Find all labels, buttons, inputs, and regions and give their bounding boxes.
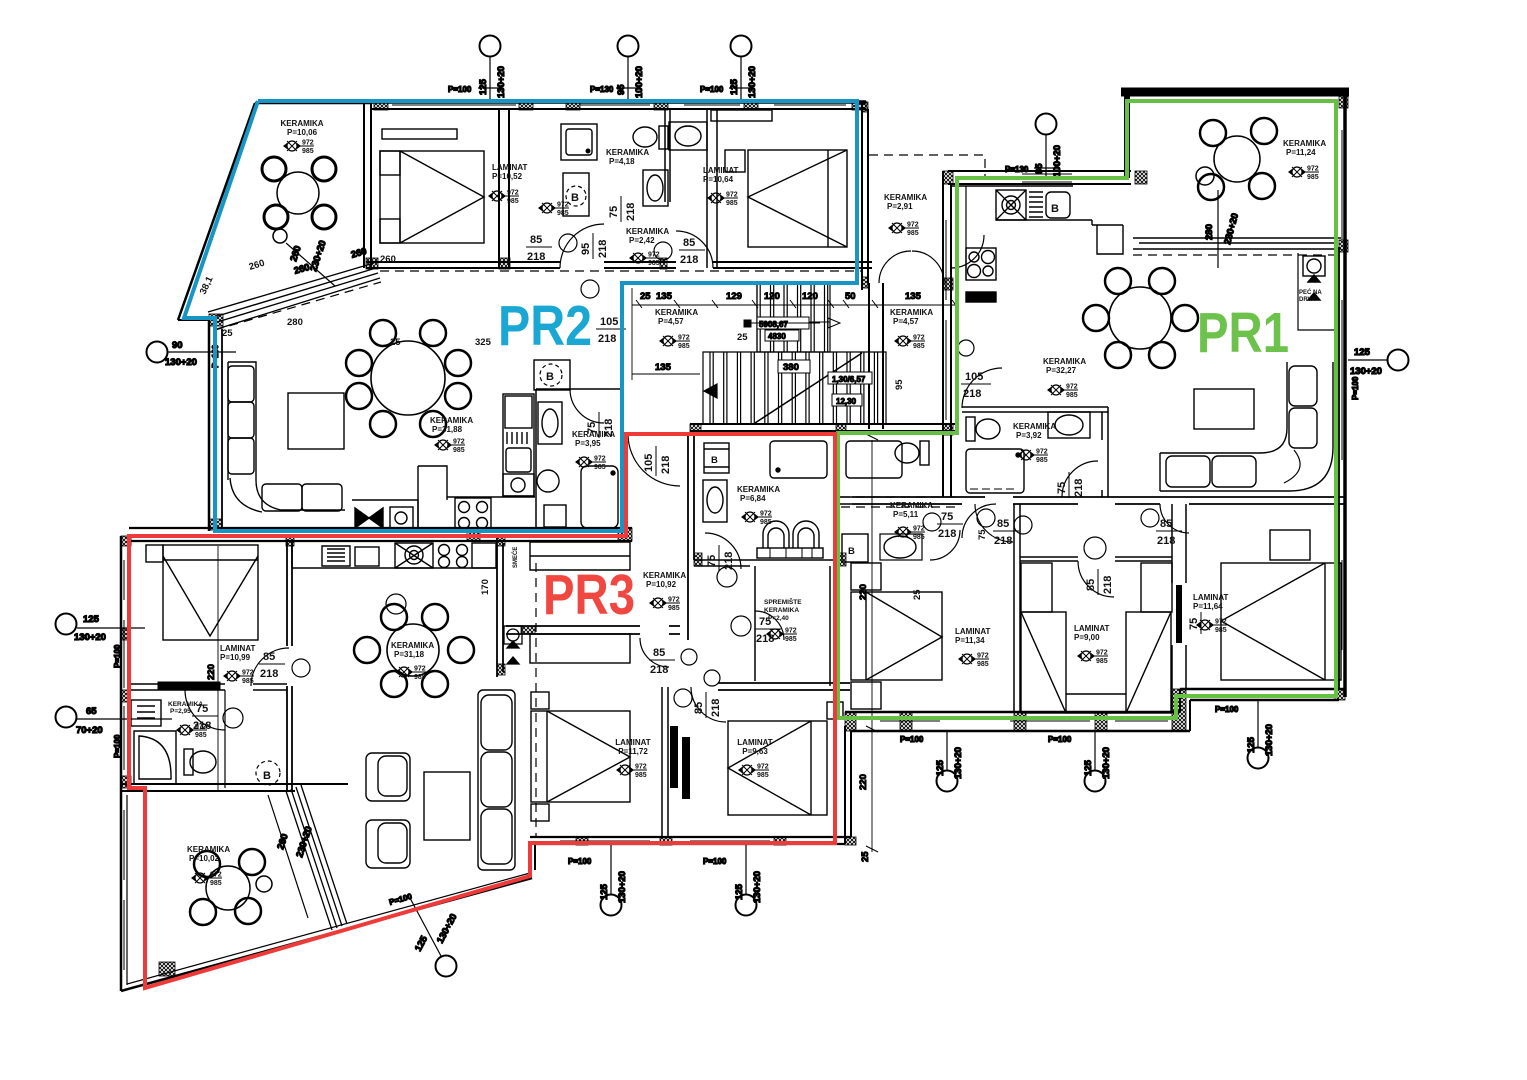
svg-text:B: B: [848, 546, 855, 557]
svg-text:129: 129: [726, 291, 742, 302]
svg-text:DRVA: DRVA: [1299, 297, 1316, 303]
svg-text:218: 218: [1157, 535, 1175, 547]
svg-text:218: 218: [710, 699, 722, 717]
svg-text:25: 25: [640, 291, 651, 302]
svg-text:135: 135: [655, 362, 672, 373]
svg-text:125: 125: [734, 883, 745, 900]
svg-text:P=31,18: P=31,18: [394, 650, 425, 659]
svg-text:218: 218: [723, 552, 735, 570]
svg-text:P=11,64: P=11,64: [1193, 602, 1223, 611]
svg-text:130+20: 130+20: [1101, 747, 1112, 779]
svg-text:75: 75: [608, 206, 620, 218]
svg-text:130+20: 130+20: [1264, 724, 1275, 756]
svg-text:P=31,88: P=31,88: [432, 425, 463, 434]
svg-text:25: 25: [390, 337, 401, 348]
svg-text:25: 25: [912, 589, 923, 600]
svg-text:P=4,57: P=4,57: [893, 317, 919, 326]
svg-text:85: 85: [263, 651, 275, 663]
svg-text:P=6,84: P=6,84: [740, 494, 766, 503]
svg-text:280: 280: [287, 317, 303, 328]
svg-text:218: 218: [598, 333, 616, 345]
svg-text:P=5,11: P=5,11: [893, 510, 919, 519]
svg-text:LAMINAT: LAMINAT: [220, 644, 256, 653]
svg-text:260: 260: [380, 254, 396, 265]
svg-text:LAMINAT: LAMINAT: [1193, 593, 1229, 602]
svg-text:85: 85: [653, 647, 665, 659]
svg-text:130+20: 130+20: [752, 871, 763, 903]
svg-text:125: 125: [729, 78, 740, 95]
svg-text:KERAMIKA: KERAMIKA: [280, 119, 323, 128]
svg-text:95: 95: [894, 379, 905, 390]
svg-text:85: 85: [693, 702, 705, 714]
svg-text:KERAMIKA: KERAMIKA: [430, 416, 473, 425]
svg-text:12,30: 12,30: [836, 397, 857, 406]
svg-text:170: 170: [480, 579, 491, 595]
svg-text:125: 125: [935, 759, 946, 776]
svg-text:65: 65: [86, 706, 97, 717]
svg-text:P=100: P=100: [700, 85, 724, 94]
svg-text:218: 218: [756, 633, 774, 645]
svg-text:P=9,00: P=9,00: [1074, 633, 1100, 642]
svg-text:95: 95: [580, 243, 592, 255]
svg-text:135: 135: [656, 291, 673, 302]
svg-text:85: 85: [1085, 579, 1097, 591]
svg-text:LAMINAT: LAMINAT: [1074, 624, 1110, 633]
svg-text:75: 75: [977, 529, 988, 540]
svg-text:125: 125: [83, 614, 100, 625]
svg-text:KERAMIKA: KERAMIKA: [1013, 422, 1056, 431]
svg-text:125: 125: [478, 78, 489, 95]
svg-text:25: 25: [860, 851, 871, 862]
svg-text:P=3,92: P=3,92: [1016, 431, 1042, 440]
svg-text:B: B: [546, 371, 554, 383]
svg-text:LAMINAT: LAMINAT: [737, 738, 773, 747]
svg-text:P=130: P=130: [1005, 165, 1029, 174]
svg-text:25: 25: [737, 332, 748, 343]
svg-text:LAMINAT: LAMINAT: [955, 627, 991, 636]
svg-text:P=100: P=100: [448, 85, 472, 94]
svg-text:130+20: 130+20: [747, 66, 758, 98]
svg-text:P=100: P=100: [1351, 376, 1360, 400]
svg-text:325: 325: [475, 337, 492, 348]
svg-text:95: 95: [1034, 163, 1045, 174]
svg-text:P=100: P=100: [113, 734, 122, 758]
svg-text:KERAMIKA: KERAMIKA: [737, 485, 780, 494]
svg-text:280: 280: [1204, 224, 1215, 240]
svg-text:218: 218: [193, 720, 211, 732]
svg-text:P=100: P=100: [703, 857, 727, 866]
svg-text:SMEĆE: SMEĆE: [511, 547, 519, 568]
svg-text:100+20: 100+20: [1052, 145, 1063, 177]
svg-text:75: 75: [586, 422, 598, 434]
svg-text:380: 380: [783, 362, 799, 373]
svg-text:PR2: PR2: [498, 294, 592, 358]
svg-text:105: 105: [600, 316, 618, 328]
svg-text:P=100: P=100: [113, 644, 122, 668]
svg-text:KERAMIKA: KERAMIKA: [626, 227, 669, 236]
svg-text:P=4,18: P=4,18: [609, 157, 635, 166]
svg-text:130+20: 130+20: [1350, 366, 1382, 377]
svg-text:SPREMIŠTE: SPREMIŠTE: [764, 597, 802, 606]
svg-text:P=10,06: P=10,06: [287, 128, 318, 137]
svg-text:P=100: P=100: [568, 857, 592, 866]
svg-text:120: 120: [764, 291, 780, 302]
svg-text:5908,67: 5908,67: [759, 320, 788, 329]
svg-text:P=32,27: P=32,27: [1046, 366, 1077, 375]
svg-text:130+20: 130+20: [617, 871, 628, 903]
svg-text:218: 218: [1102, 576, 1114, 594]
svg-text:KERAMIKA: KERAMIKA: [764, 607, 799, 614]
svg-text:120: 120: [802, 291, 818, 302]
svg-text:KERAMIKA: KERAMIKA: [391, 641, 434, 650]
svg-text:218: 218: [603, 419, 615, 437]
svg-text:218: 218: [660, 456, 672, 474]
svg-text:218: 218: [597, 240, 609, 258]
svg-text:KERAMIKA: KERAMIKA: [1283, 139, 1326, 148]
svg-text:P=100: P=100: [900, 735, 924, 744]
svg-text:85: 85: [1160, 518, 1172, 530]
svg-text:130+20: 130+20: [74, 632, 106, 643]
svg-text:218: 218: [260, 668, 278, 680]
svg-text:105: 105: [643, 454, 655, 472]
svg-text:PR1: PR1: [1197, 301, 1289, 365]
svg-text:75: 75: [941, 511, 953, 523]
svg-text:P=130: P=130: [590, 85, 614, 94]
svg-text:P=2,42: P=2,42: [629, 236, 655, 245]
svg-text:P=100: P=100: [1215, 705, 1239, 714]
svg-text:218: 218: [527, 251, 545, 263]
svg-text:P=10,52: P=10,52: [492, 172, 523, 181]
svg-text:B: B: [711, 455, 718, 466]
svg-text:P=11,72: P=11,72: [618, 747, 648, 756]
svg-text:B: B: [571, 192, 579, 204]
svg-text:130+20: 130+20: [953, 747, 964, 779]
svg-text:P=2,91: P=2,91: [887, 202, 913, 211]
svg-text:75: 75: [759, 616, 771, 628]
svg-text:95: 95: [616, 84, 627, 95]
svg-text:220: 220: [858, 584, 869, 600]
svg-text:KERAMIKA: KERAMIKA: [643, 571, 686, 580]
svg-text:KERAMIKA: KERAMIKA: [655, 308, 698, 317]
svg-text:220: 220: [206, 664, 217, 680]
svg-text:1,30/6,57: 1,30/6,57: [832, 375, 866, 384]
svg-text:B: B: [1051, 203, 1059, 215]
svg-text:218: 218: [1073, 479, 1085, 497]
svg-text:P=10,92: P=10,92: [646, 580, 677, 589]
svg-text:LAMINAT: LAMINAT: [703, 166, 739, 175]
svg-text:130+20: 130+20: [165, 357, 197, 368]
svg-text:218: 218: [650, 664, 668, 676]
svg-text:135: 135: [905, 291, 922, 302]
svg-text:85: 85: [683, 237, 695, 249]
svg-text:P=9,63: P=9,63: [742, 747, 768, 756]
svg-text:125: 125: [1354, 347, 1371, 358]
svg-text:75: 75: [1056, 482, 1068, 494]
svg-text:85: 85: [530, 234, 542, 246]
svg-text:LAMINAT: LAMINAT: [615, 738, 651, 747]
svg-text:218: 218: [680, 254, 698, 266]
svg-text:218: 218: [963, 388, 981, 400]
svg-text:75: 75: [196, 703, 208, 715]
svg-text:P=100: P=100: [1048, 735, 1072, 744]
svg-text:P=11,24: P=11,24: [1286, 148, 1316, 157]
svg-text:KERAMIKA: KERAMIKA: [890, 308, 933, 317]
svg-text:85: 85: [997, 518, 1009, 530]
svg-text:P=11,34: P=11,34: [955, 636, 985, 645]
svg-text:75: 75: [1188, 618, 1200, 630]
svg-text:P=10,02: P=10,02: [189, 854, 220, 863]
svg-text:125: 125: [1083, 759, 1094, 776]
svg-text:100+20: 100+20: [634, 66, 645, 98]
svg-text:P=10,99: P=10,99: [220, 653, 251, 662]
svg-text:50: 50: [845, 291, 856, 302]
svg-text:25: 25: [222, 328, 233, 339]
svg-text:220: 220: [858, 774, 869, 790]
svg-text:P=10,64: P=10,64: [703, 175, 734, 184]
svg-text:P=4,57: P=4,57: [658, 317, 684, 326]
svg-text:218: 218: [994, 535, 1012, 547]
svg-text:KERAMIKA: KERAMIKA: [884, 193, 927, 202]
svg-text:KERAMIKA: KERAMIKA: [187, 845, 230, 854]
svg-text:KERAMIKA: KERAMIKA: [1043, 357, 1086, 366]
svg-text:P=2,95: P=2,95: [170, 708, 191, 715]
svg-text:75: 75: [706, 555, 718, 567]
svg-text:90: 90: [172, 340, 183, 351]
svg-text:B: B: [263, 770, 271, 782]
svg-text:KERAMIKA: KERAMIKA: [890, 501, 933, 510]
svg-text:4830: 4830: [768, 332, 786, 341]
svg-text:125: 125: [599, 883, 610, 900]
svg-text:105: 105: [965, 371, 983, 383]
svg-text:218: 218: [625, 203, 637, 221]
svg-text:P=3,95: P=3,95: [575, 439, 601, 448]
svg-text:218: 218: [938, 528, 956, 540]
svg-text:KERAMIKA: KERAMIKA: [606, 148, 649, 157]
svg-text:130+20: 130+20: [496, 66, 507, 98]
svg-text:PEĆ NA: PEĆ NA: [1299, 288, 1322, 296]
svg-text:LAMINAT: LAMINAT: [492, 163, 528, 172]
svg-text:70+20: 70+20: [76, 725, 103, 736]
svg-text:PR3: PR3: [543, 563, 635, 627]
svg-text:125: 125: [1246, 736, 1257, 753]
